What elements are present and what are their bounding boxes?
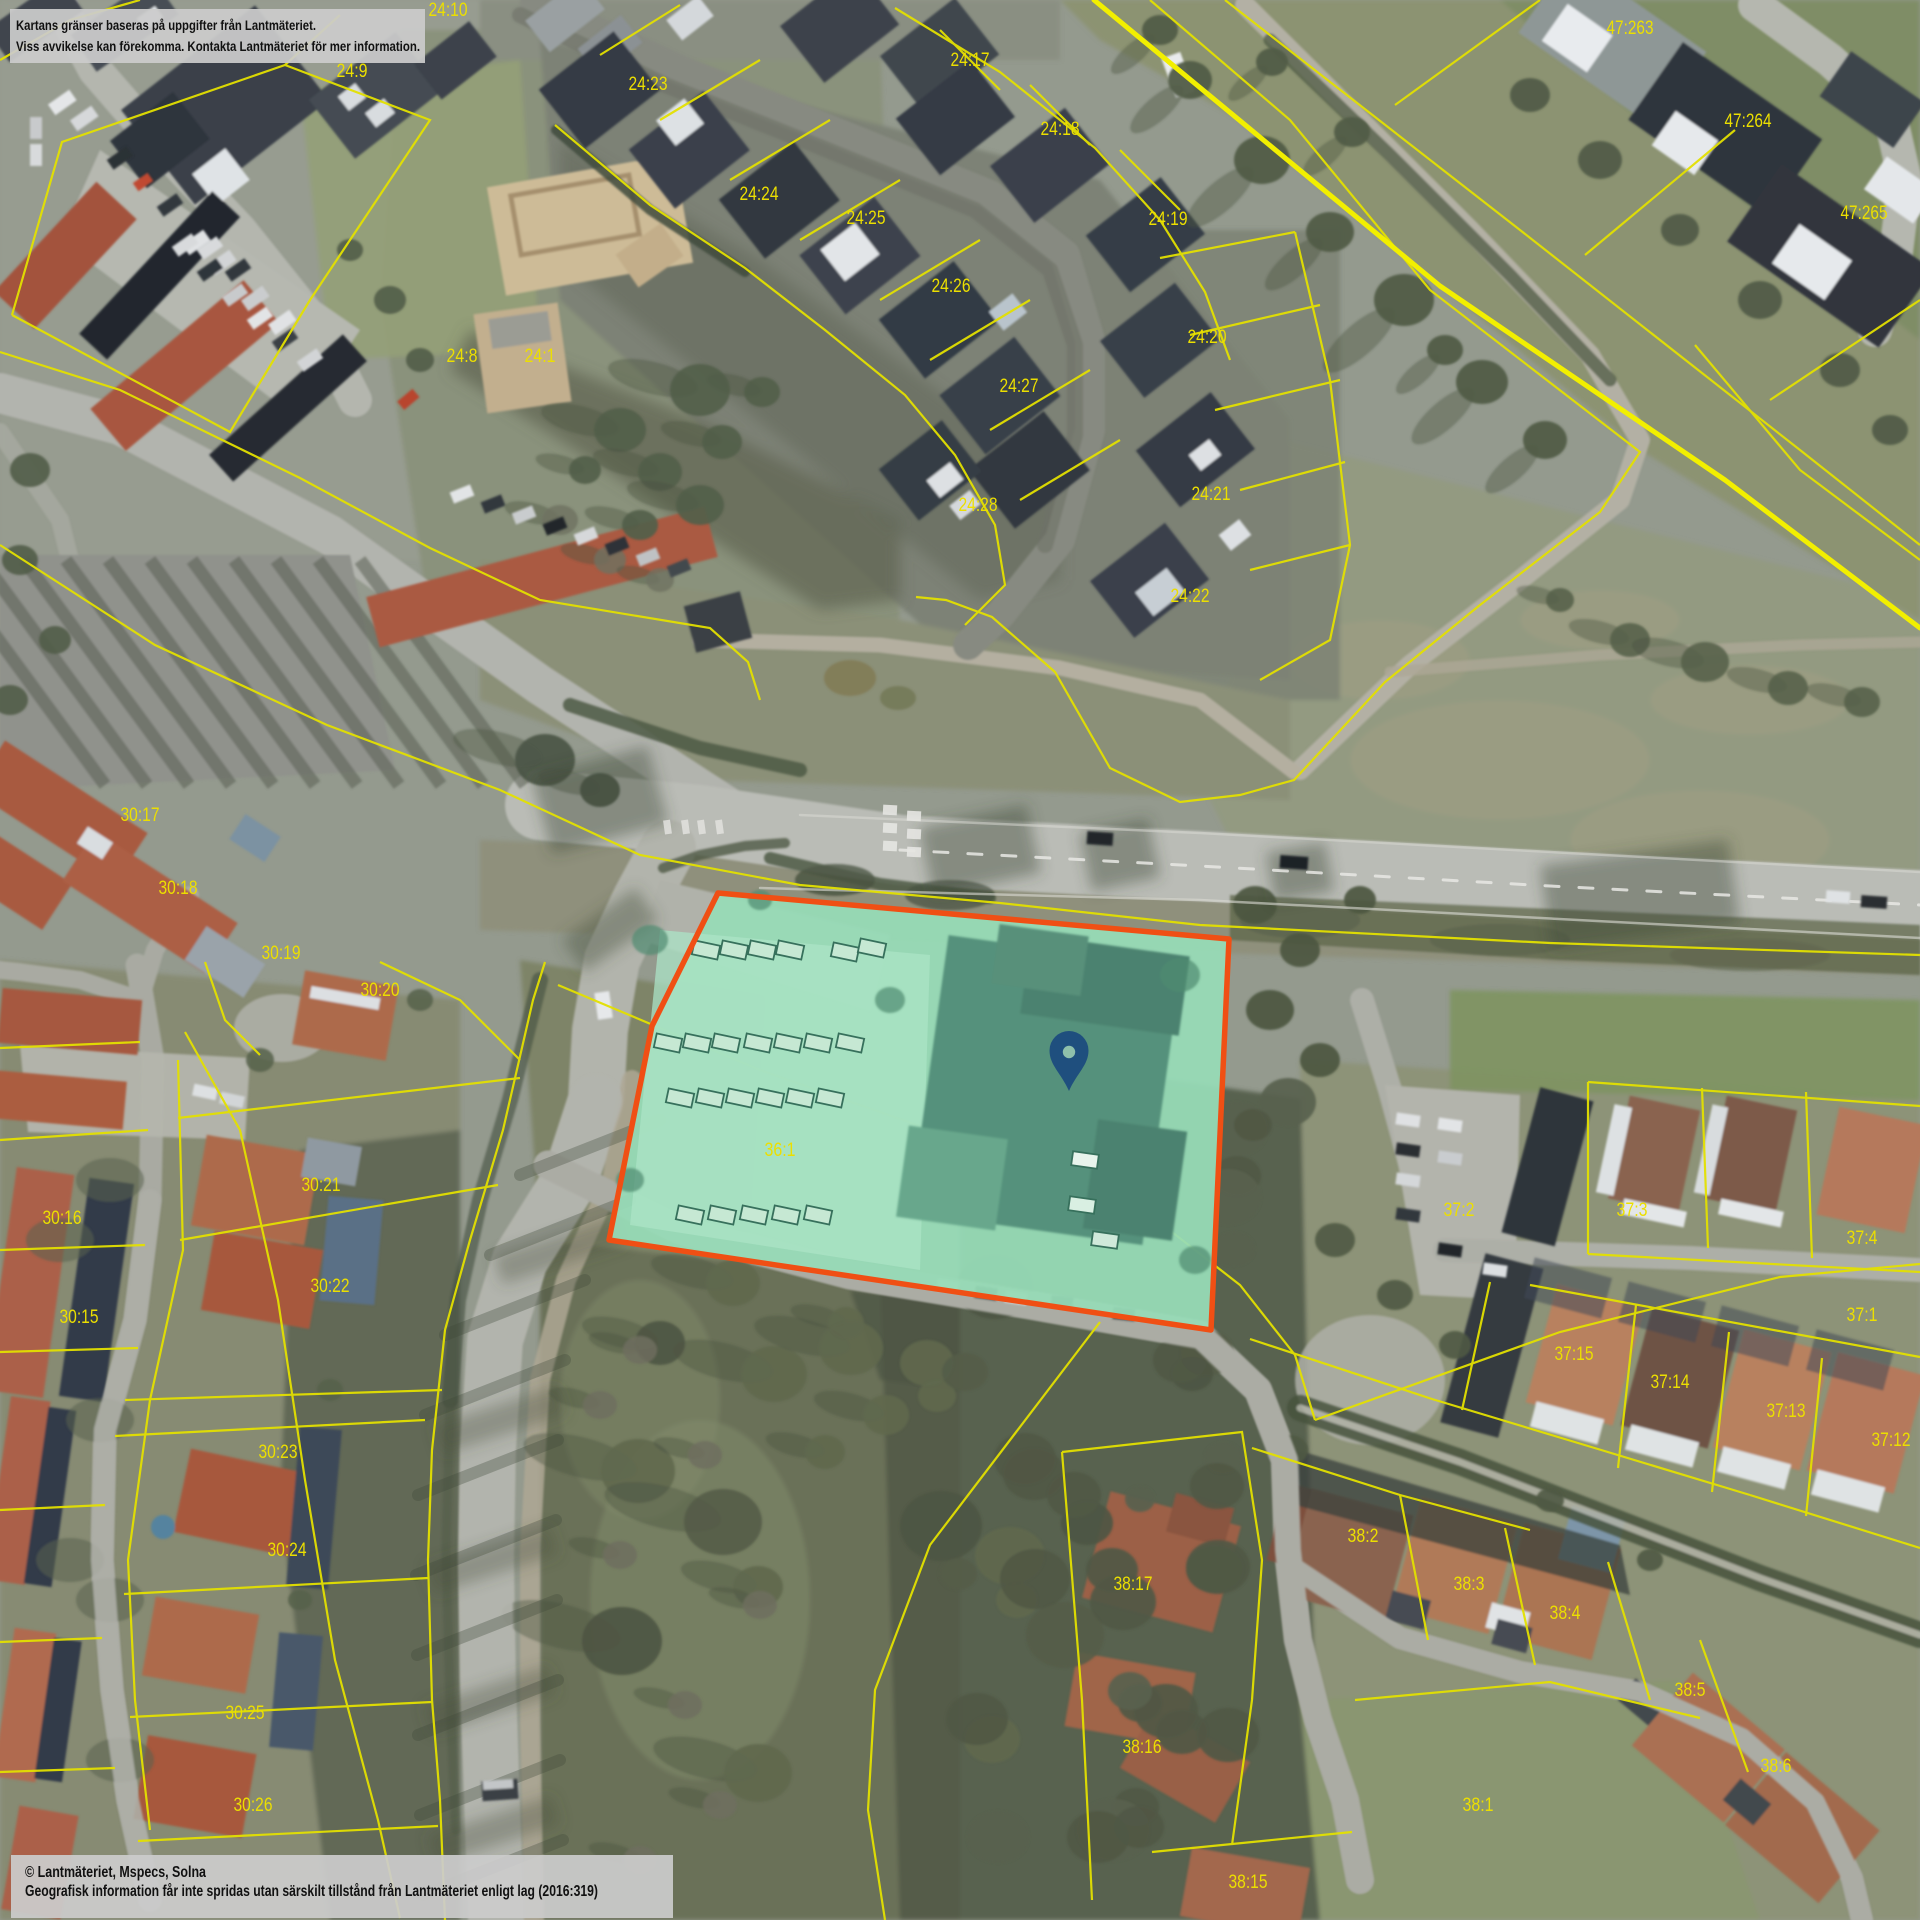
svg-text:24:22: 24:22 <box>1171 586 1210 607</box>
svg-text:38:6: 38:6 <box>1761 1756 1792 1777</box>
svg-text:30:25: 30:25 <box>226 1703 265 1724</box>
svg-text:30:23: 30:23 <box>259 1442 298 1463</box>
svg-text:37:3: 37:3 <box>1617 1200 1648 1221</box>
svg-text:38:15: 38:15 <box>1229 1872 1268 1893</box>
svg-text:Kartans gränser baseras på upp: Kartans gränser baseras på uppgifter frå… <box>16 18 316 33</box>
svg-text:24:1: 24:1 <box>525 346 556 367</box>
svg-text:38:3: 38:3 <box>1454 1574 1485 1595</box>
svg-text:37:15: 37:15 <box>1555 1344 1594 1365</box>
svg-text:37:12: 37:12 <box>1872 1430 1911 1451</box>
svg-text:24:27: 24:27 <box>1000 376 1039 397</box>
svg-text:38:16: 38:16 <box>1123 1737 1162 1758</box>
svg-text:30:20: 30:20 <box>361 980 400 1001</box>
svg-text:38:4: 38:4 <box>1550 1603 1581 1624</box>
svg-text:30:22: 30:22 <box>311 1276 350 1297</box>
svg-text:© Lantmäteriet, Mspecs, Solna: © Lantmäteriet, Mspecs, Solna <box>25 1864 206 1881</box>
svg-text:24:8: 24:8 <box>447 346 478 367</box>
svg-text:47:264: 47:264 <box>1725 111 1772 132</box>
svg-text:24:19: 24:19 <box>1149 209 1188 230</box>
svg-text:30:26: 30:26 <box>234 1795 273 1816</box>
svg-text:24:28: 24:28 <box>959 495 998 516</box>
svg-text:24:17: 24:17 <box>951 50 990 71</box>
svg-text:24:26: 24:26 <box>932 276 971 297</box>
svg-text:24:25: 24:25 <box>847 208 886 229</box>
svg-text:47:263: 47:263 <box>1607 18 1654 39</box>
svg-text:30:18: 30:18 <box>159 878 198 899</box>
svg-text:30:15: 30:15 <box>60 1307 99 1328</box>
svg-text:38:1: 38:1 <box>1463 1795 1494 1816</box>
svg-text:24:9: 24:9 <box>337 61 368 82</box>
svg-text:37:2: 37:2 <box>1444 1200 1475 1221</box>
svg-text:24:23: 24:23 <box>629 74 668 95</box>
svg-text:37:14: 37:14 <box>1651 1372 1690 1393</box>
svg-text:24:10: 24:10 <box>429 0 468 21</box>
svg-text:47:265: 47:265 <box>1841 203 1888 224</box>
svg-text:30:17: 30:17 <box>121 805 160 826</box>
svg-text:Geografisk information får int: Geografisk information får inte spridas … <box>25 1883 598 1900</box>
svg-text:30:19: 30:19 <box>262 943 301 964</box>
svg-text:24:18: 24:18 <box>1041 119 1080 140</box>
svg-text:36:1: 36:1 <box>765 1140 796 1161</box>
svg-text:37:4: 37:4 <box>1847 1228 1878 1249</box>
svg-text:24:24: 24:24 <box>740 184 779 205</box>
svg-text:Viss avvikelse kan förekomma.: Viss avvikelse kan förekomma. Kontakta L… <box>16 39 420 54</box>
svg-text:30:21: 30:21 <box>302 1175 341 1196</box>
svg-text:38:5: 38:5 <box>1675 1680 1706 1701</box>
svg-text:24:20: 24:20 <box>1188 327 1227 348</box>
svg-text:30:24: 30:24 <box>268 1540 307 1561</box>
svg-text:38:2: 38:2 <box>1348 1526 1379 1547</box>
svg-text:24:21: 24:21 <box>1192 484 1231 505</box>
svg-text:30:16: 30:16 <box>43 1208 82 1229</box>
svg-text:37:13: 37:13 <box>1767 1401 1806 1422</box>
svg-text:37:1: 37:1 <box>1847 1305 1878 1326</box>
svg-text:38:17: 38:17 <box>1114 1574 1153 1595</box>
